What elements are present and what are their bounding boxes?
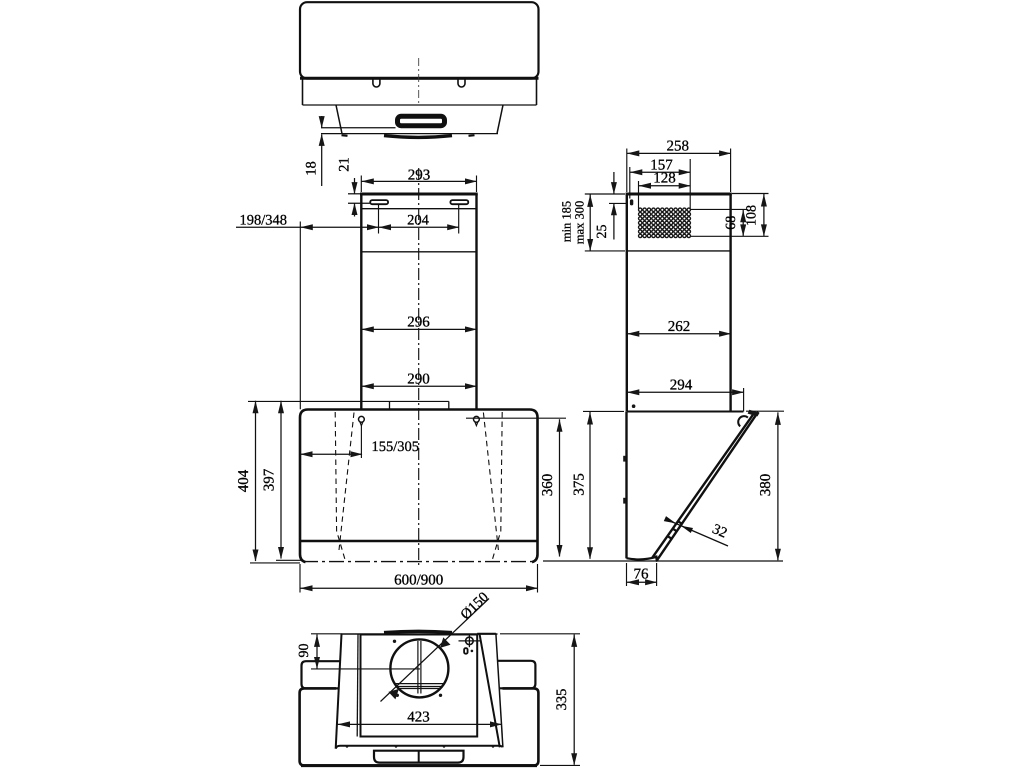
svg-text:18: 18 <box>304 161 320 176</box>
svg-text:258: 258 <box>666 139 689 155</box>
svg-text:min 185: min 185 <box>560 201 574 242</box>
svg-text:293: 293 <box>408 168 431 184</box>
svg-text:296: 296 <box>407 315 430 331</box>
svg-text:max 300: max 300 <box>573 201 587 244</box>
svg-text:204: 204 <box>407 213 430 229</box>
svg-text:198/348: 198/348 <box>240 213 288 229</box>
svg-text:155/305: 155/305 <box>372 439 420 455</box>
svg-text:335: 335 <box>554 689 570 711</box>
svg-text:600/900: 600/900 <box>394 573 443 589</box>
svg-text:360: 360 <box>540 474 556 497</box>
svg-text:128: 128 <box>653 171 676 187</box>
svg-text:108: 108 <box>745 205 760 226</box>
svg-text:290: 290 <box>407 371 430 387</box>
svg-text:21: 21 <box>337 157 353 172</box>
svg-text:262: 262 <box>668 319 691 335</box>
svg-text:375: 375 <box>572 473 588 496</box>
svg-text:404: 404 <box>236 469 252 492</box>
svg-text:68: 68 <box>724 216 739 230</box>
svg-text:397: 397 <box>262 468 278 491</box>
svg-text:25: 25 <box>595 225 610 239</box>
svg-text:294: 294 <box>670 377 693 393</box>
svg-text:380: 380 <box>758 474 774 497</box>
svg-text:90: 90 <box>297 644 312 658</box>
svg-text:76: 76 <box>634 567 650 583</box>
svg-text:423: 423 <box>407 710 430 726</box>
